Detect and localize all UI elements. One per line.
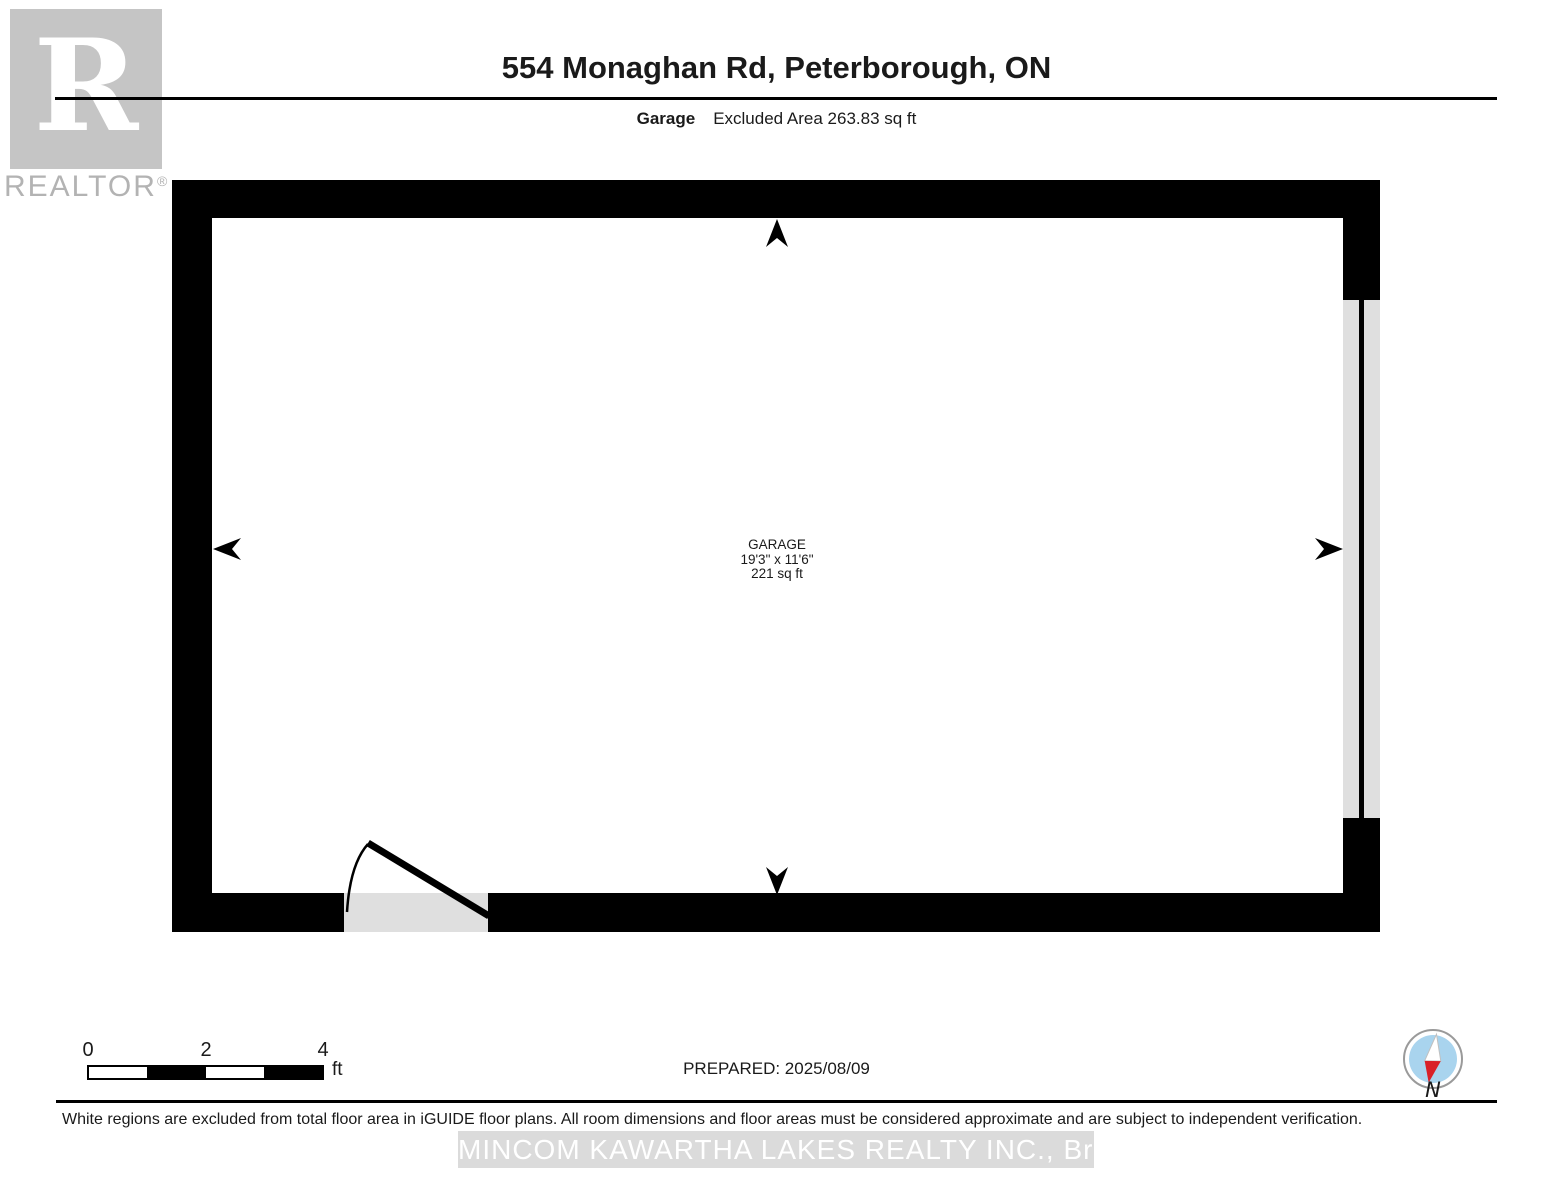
garage-door-panel [1359, 300, 1364, 818]
realtor-wordmark: REALTOR® [4, 170, 194, 204]
compass-north-label: N [1413, 1078, 1453, 1102]
page-title: 554 Monaghan Rd, Peterborough, ON [0, 50, 1553, 86]
excluded-area-label: Excluded Area 263.83 sq ft [713, 109, 916, 128]
disclaimer-text: White regions are excluded from total fl… [62, 1111, 1492, 1129]
floor-label: Garage [637, 109, 696, 128]
plan-subtitle: GarageExcluded Area 263.83 sq ft [0, 109, 1553, 129]
room-dimensions: 19'3" x 11'6" [740, 552, 813, 567]
footer-divider [56, 1100, 1497, 1103]
registered-mark: ® [157, 173, 167, 189]
room-name: GARAGE [748, 537, 806, 552]
floorplan-page: R REALTOR® 554 Monaghan Rd, Peterborough… [0, 0, 1553, 1200]
floorplan-drawing: GARAGE 19'3" x 11'6" 221 sq ft [0, 0, 1553, 1200]
realtor-logo-r-icon: R [34, 23, 139, 149]
brokerage-watermark: MINCOM KAWARTHA LAKES REALTY INC., Broke… [458, 1131, 1094, 1168]
room-area: 221 sq ft [751, 566, 803, 581]
header-divider [55, 97, 1497, 100]
realtor-logo: R [10, 9, 162, 169]
prepared-date: PREPARED: 2025/08/09 [0, 1059, 1553, 1079]
